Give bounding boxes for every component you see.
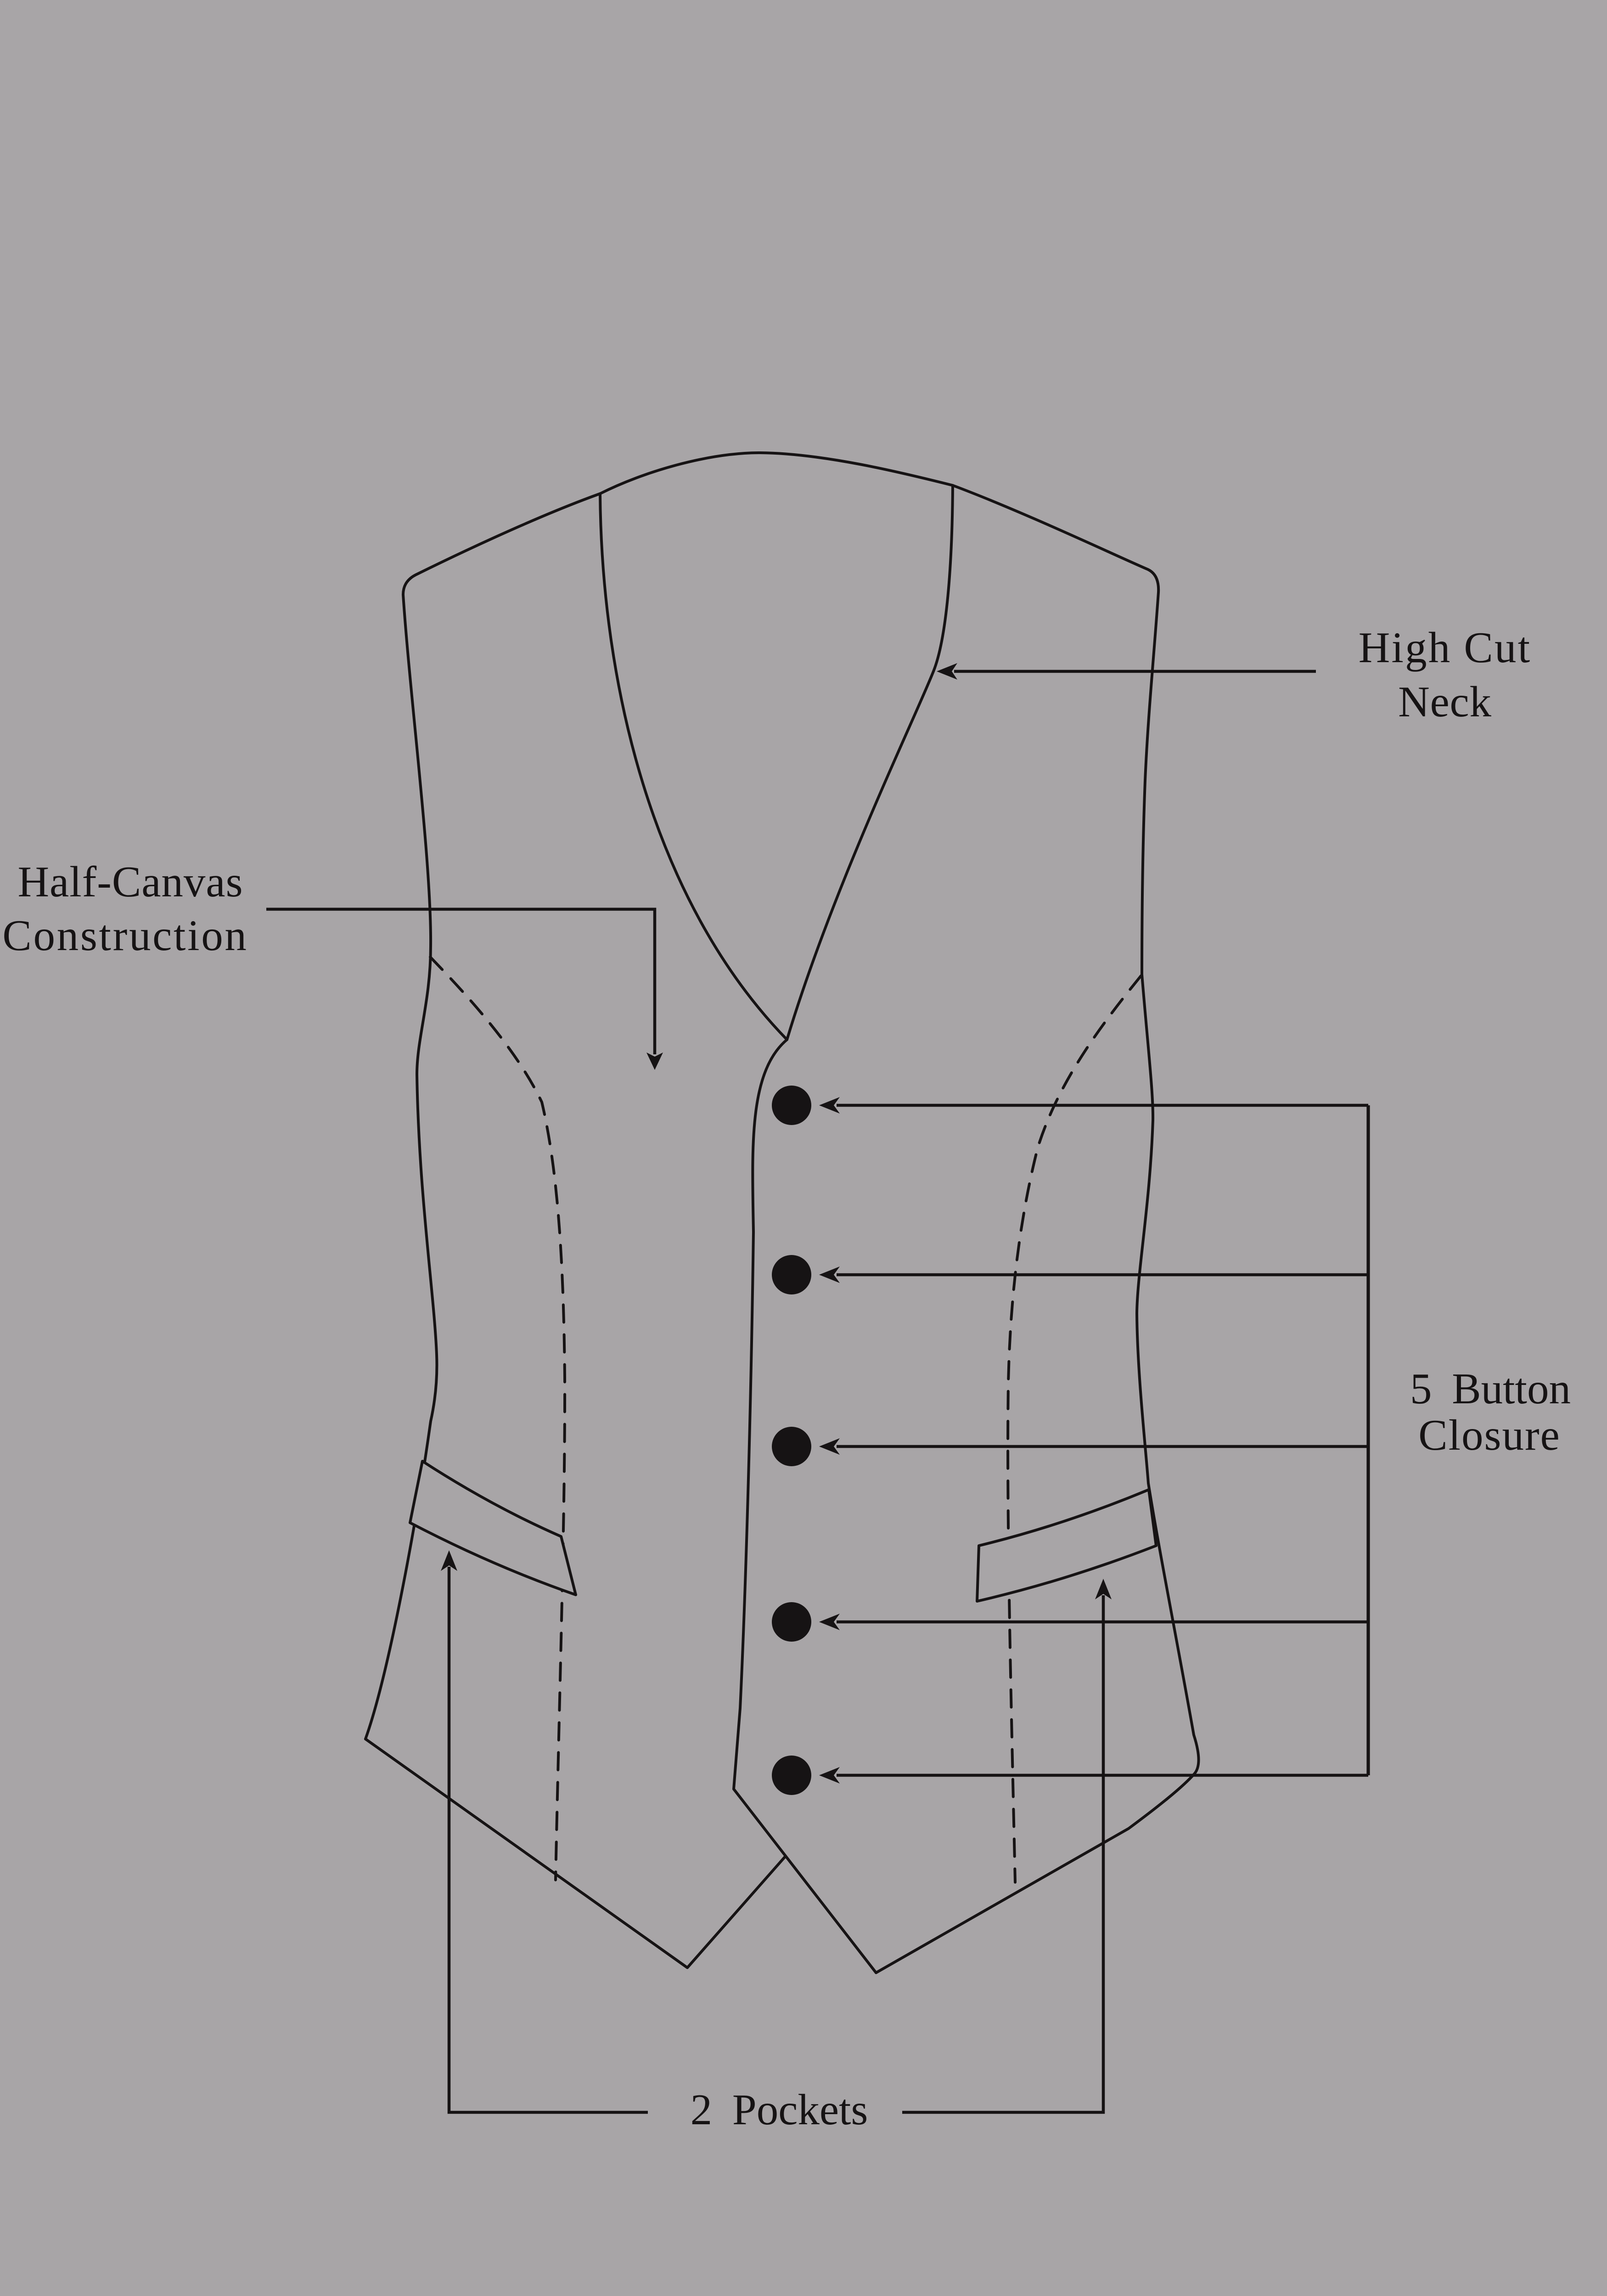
svg-text:Half-Canvas: Half-Canvas [17, 857, 243, 906]
svg-text:2 Pockets: 2 Pockets [691, 2085, 868, 2134]
svg-text:Closure: Closure [1418, 1411, 1561, 1459]
svg-text:High Cut: High Cut [1359, 623, 1532, 672]
svg-text:5 Button: 5 Button [1410, 1364, 1571, 1413]
svg-text:Construction: Construction [2, 911, 248, 960]
svg-text:Neck: Neck [1398, 677, 1492, 726]
